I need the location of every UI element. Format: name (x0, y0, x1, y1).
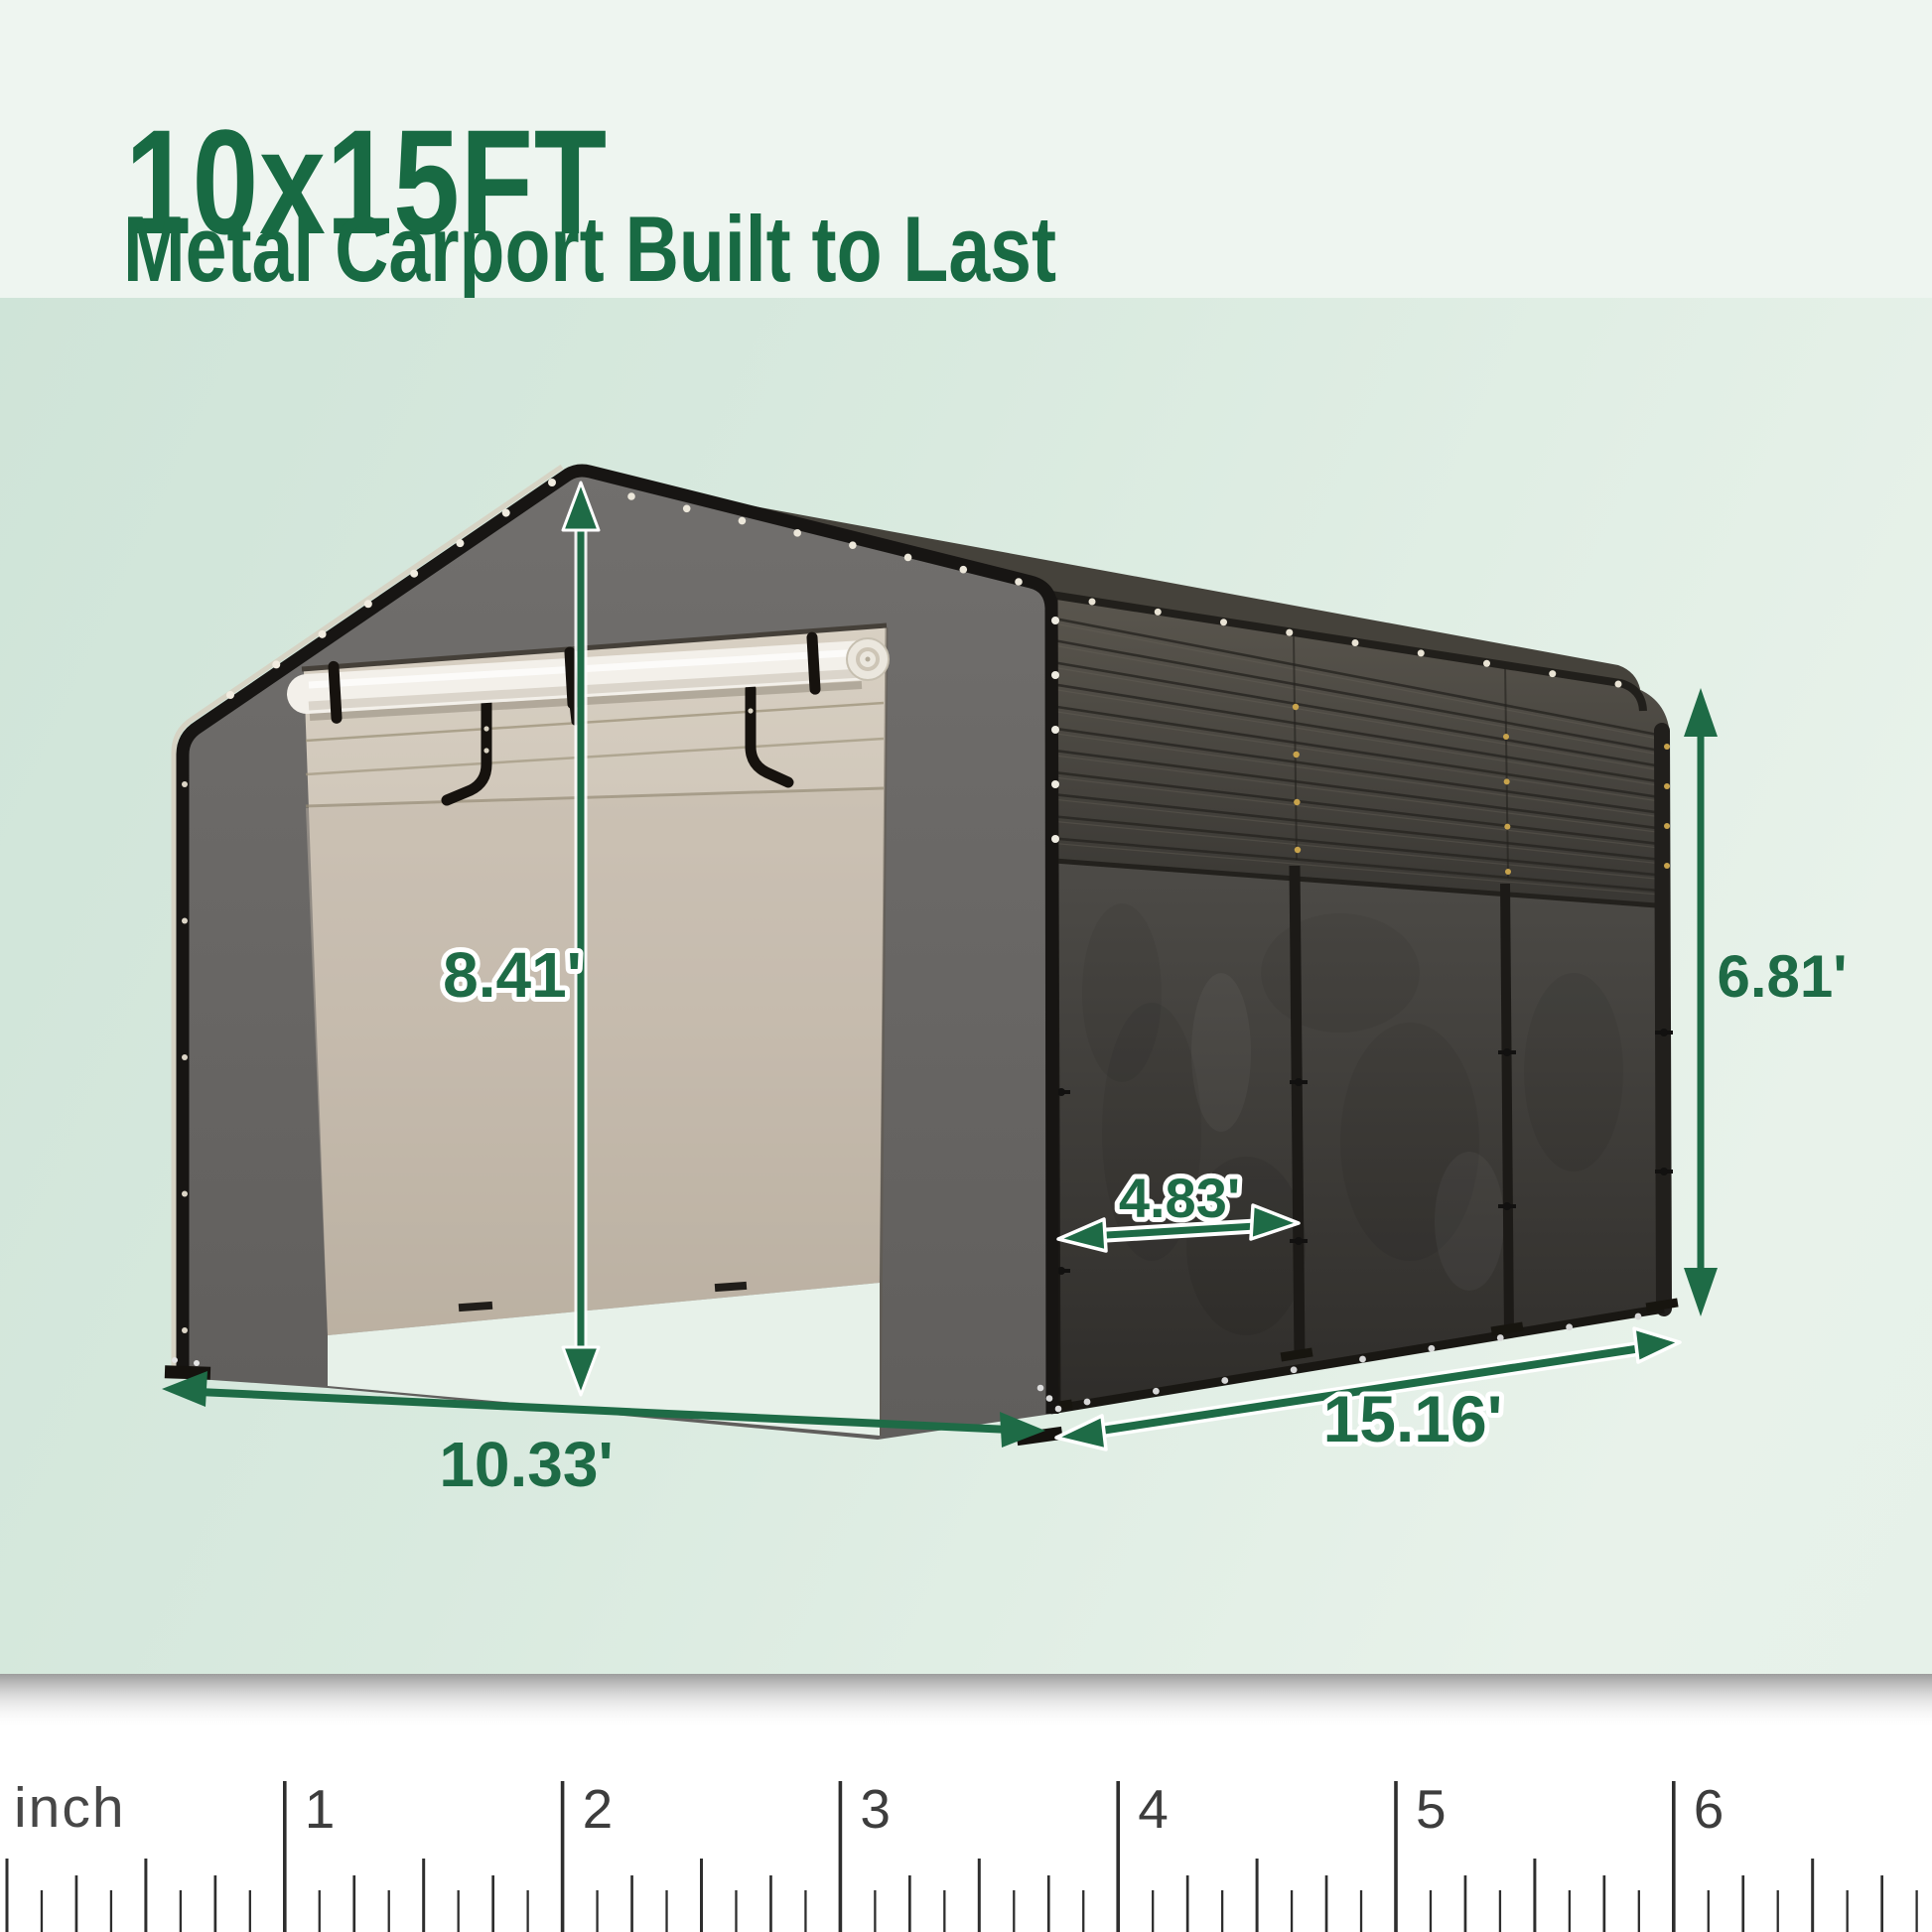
dimension-label-front-height: 8.41' (443, 939, 582, 1011)
product-infographic: 10x15FT Metal Carport Built to Last (0, 0, 1932, 1932)
side-pole (1505, 884, 1509, 1334)
ruler-number-3: 3 (860, 1778, 891, 1840)
ruler-number-4: 4 (1138, 1778, 1169, 1840)
ruler: inch 123456 (0, 1674, 1932, 1932)
brace-bolt (483, 748, 488, 753)
ruler-top-shadow (0, 1674, 1932, 1729)
ruler-unit-label: inch (14, 1776, 126, 1840)
side-pole (1295, 866, 1300, 1358)
side-corner-pole (1662, 731, 1664, 1309)
dimension-label-front-width: 10.33' (439, 1429, 613, 1500)
brace-bolt (748, 708, 753, 713)
dimension-label-side-length: 15.16' (1323, 1382, 1503, 1455)
dimension-side-height: 6.81' (1684, 688, 1848, 1316)
roll-end-center (866, 657, 871, 662)
ruler-number-1: 1 (305, 1778, 336, 1840)
dimension-label-panel-width: 4.83' (1119, 1167, 1240, 1229)
ruler-number-6: 6 (1694, 1778, 1725, 1840)
dimension-label-side-height: 6.81' (1717, 943, 1847, 1010)
ruler-number-5: 5 (1416, 1778, 1447, 1840)
ruler-number-2: 2 (583, 1778, 614, 1840)
carport (165, 467, 1679, 1446)
carport-interior (302, 625, 889, 1436)
carport-illustration: 8.41' 6.81' 4.83' 10 (0, 0, 1932, 1932)
interior-lower-tarp (306, 790, 884, 1335)
brace-bolt (483, 726, 488, 731)
